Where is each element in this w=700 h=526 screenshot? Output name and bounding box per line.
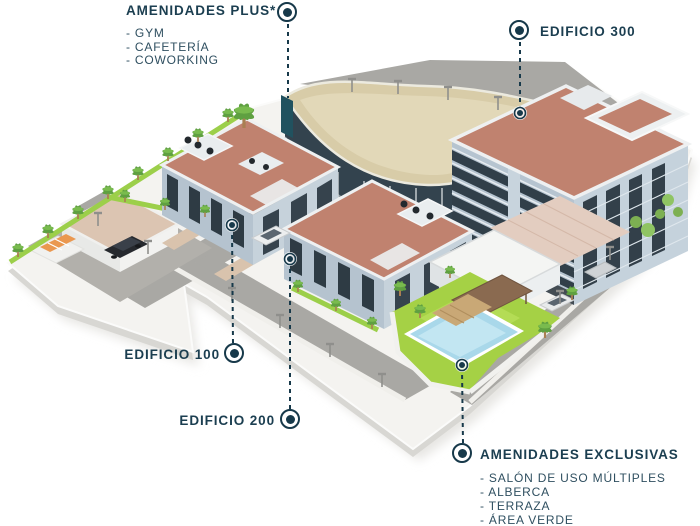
callout-edificio-100-title: EDIFICIO 100	[105, 347, 220, 362]
marker-edificio-300[interactable]	[509, 20, 529, 40]
amenity-item: - ÁREA VERDE	[480, 513, 679, 526]
marker-edificio-200[interactable]	[280, 409, 300, 429]
callout-amenidades-exclusivas: AMENIDADES EXCLUSIVAS - SALÓN DE USO MÚL…	[480, 447, 679, 526]
marker-edificio-100[interactable]	[224, 343, 244, 363]
marker-amenidades-plus[interactable]	[277, 2, 297, 22]
callout-amenidades-exclusivas-title: AMENIDADES EXCLUSIVAS	[480, 447, 679, 462]
callout-edificio-300-title: EDIFICIO 300	[540, 24, 636, 39]
amenity-item: - COWORKING	[126, 54, 276, 68]
callout-edificio-100: EDIFICIO 100	[105, 347, 220, 362]
callout-amenidades-plus-items: - GYM - CAFETERÍA - COWORKING	[126, 27, 276, 68]
marker-amenidades-exclusivas[interactable]	[452, 443, 472, 463]
callout-amenidades-exclusivas-items: - SALÓN DE USO MÚLTIPLES - ALBERCA - TER…	[480, 471, 679, 526]
amenity-item: - ALBERCA	[480, 485, 679, 499]
callout-amenidades-plus-title: AMENIDADES PLUS*	[126, 3, 276, 18]
callout-amenidades-plus: AMENIDADES PLUS* - GYM - CAFETERÍA - COW…	[126, 3, 276, 68]
callout-edificio-300: EDIFICIO 300	[540, 24, 636, 39]
amenity-item: - SALÓN DE USO MÚLTIPLES	[480, 471, 679, 485]
callout-edificio-200-title: EDIFICIO 200	[160, 413, 275, 428]
amenity-item: - GYM	[126, 27, 276, 41]
amenity-item: - CAFETERÍA	[126, 41, 276, 55]
amenity-item: - TERRAZA	[480, 499, 679, 513]
callout-edificio-200: EDIFICIO 200	[160, 413, 275, 428]
curved-building-teal-tip	[281, 95, 293, 138]
site-plan-page: AMENIDADES PLUS* - GYM - CAFETERÍA - COW…	[0, 0, 700, 526]
